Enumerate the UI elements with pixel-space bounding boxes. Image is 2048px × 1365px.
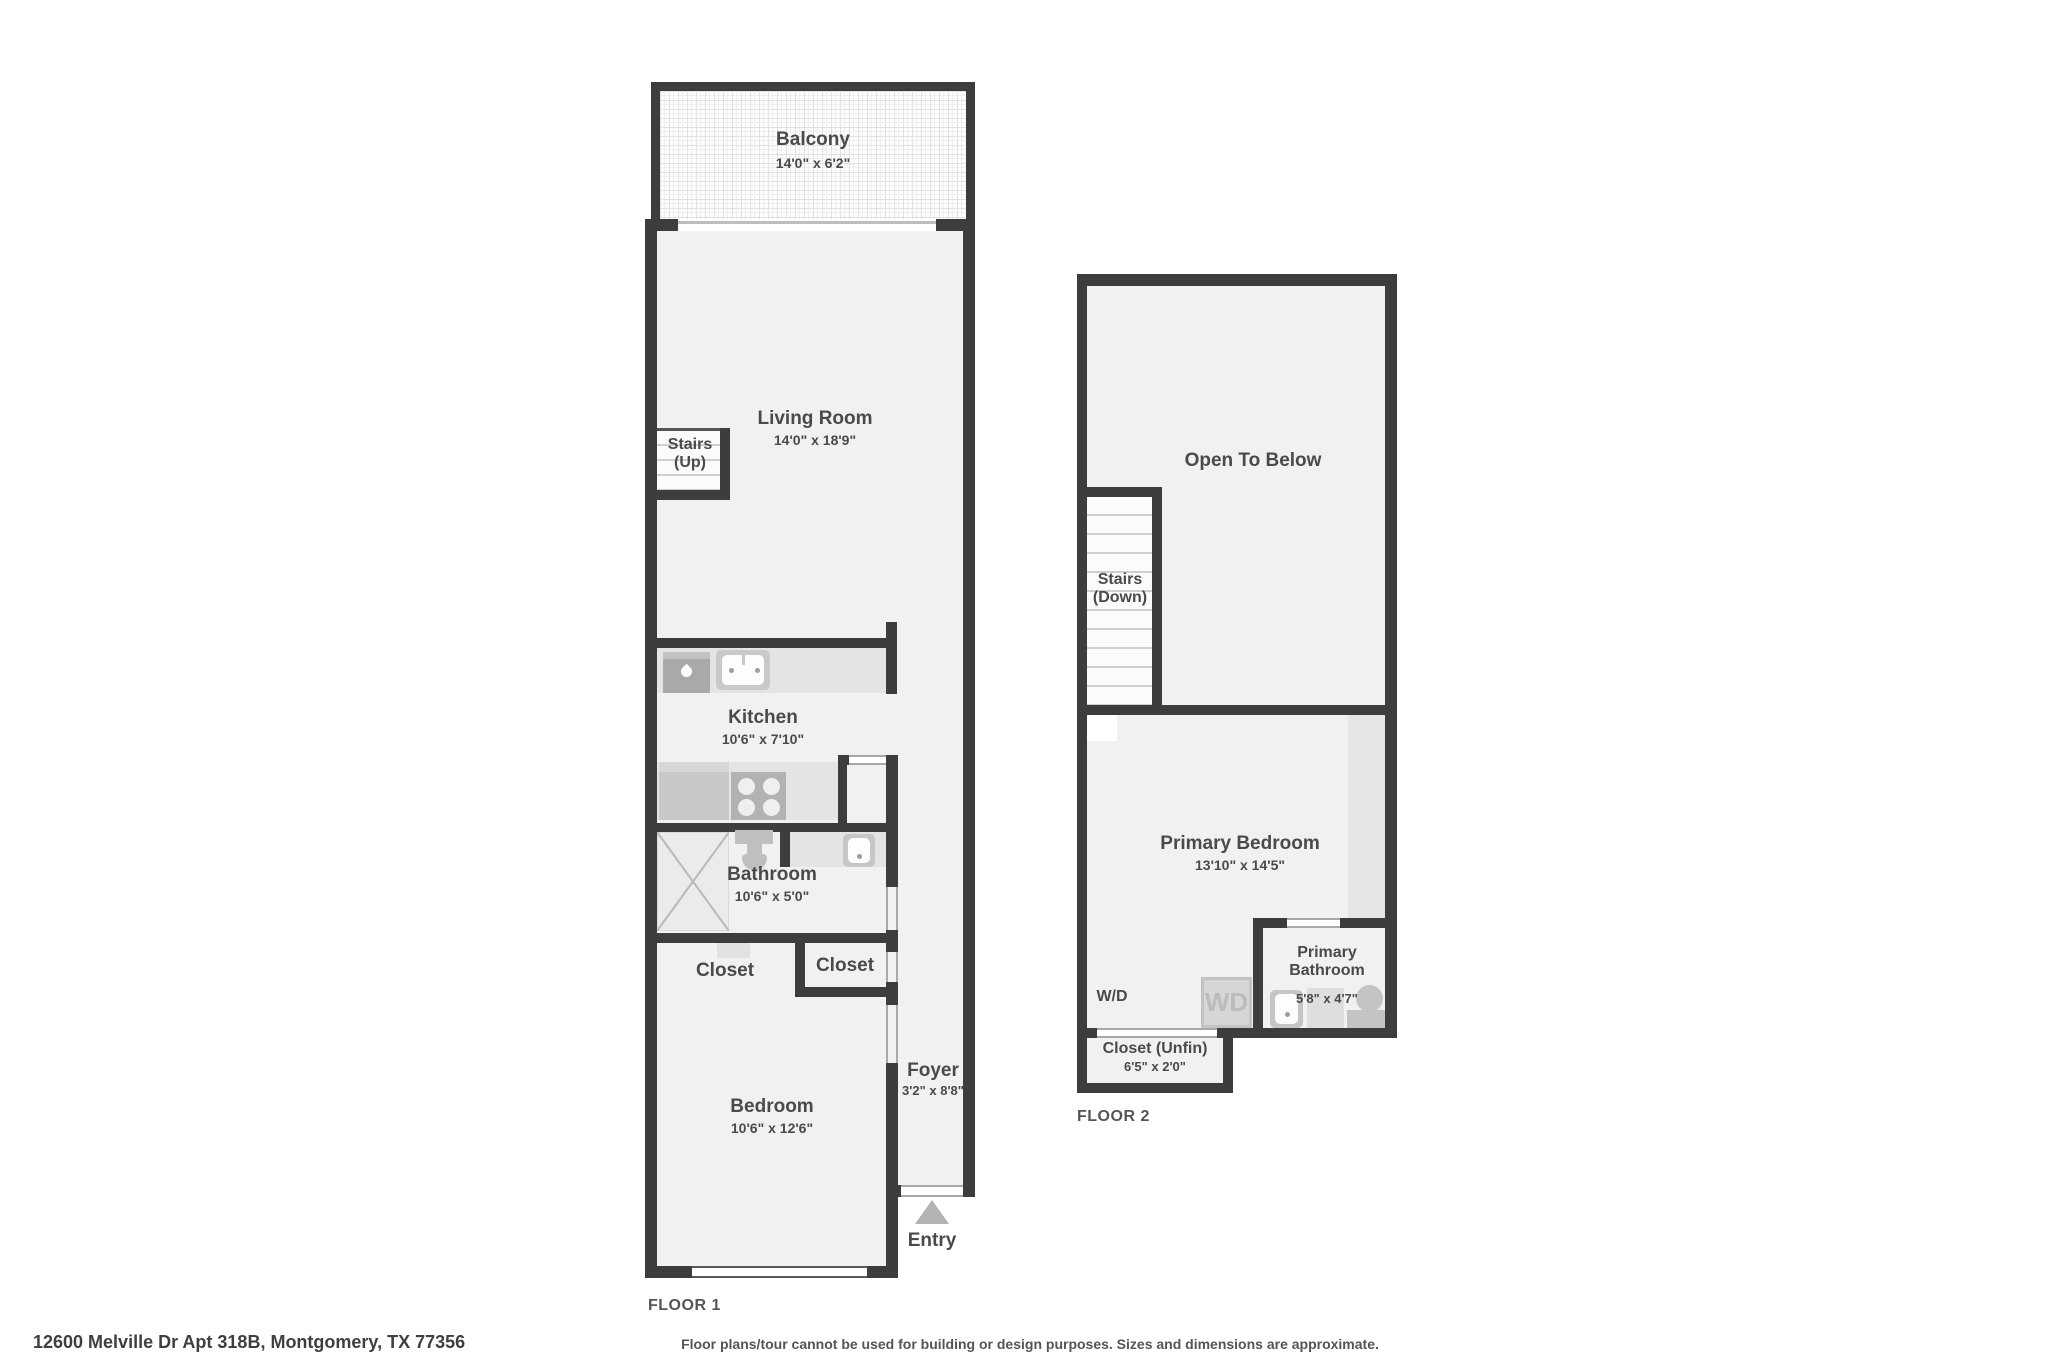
bedroom-window	[692, 1266, 867, 1278]
burner-icon	[763, 778, 780, 795]
wall-segment	[651, 82, 660, 228]
floor2-title: FLOOR 2	[1077, 1108, 1150, 1126]
stairs-up-topline	[657, 428, 720, 431]
wall-segment	[886, 1063, 898, 1278]
primary-bath-sink-basin	[1275, 994, 1298, 1024]
living-room-dims: 14'0" x 18'9"	[774, 432, 856, 448]
primary-bathroom-label: PrimaryBathroom	[1289, 944, 1365, 981]
wall-segment	[1340, 918, 1397, 928]
wall-segment	[966, 82, 975, 228]
shower-icon	[657, 832, 729, 931]
closet-door-opening	[849, 755, 886, 765]
floor1-title: FLOOR 1	[648, 1297, 721, 1315]
wall-segment	[1152, 487, 1162, 715]
wall-segment	[645, 933, 898, 943]
stairs-down-label: Stairs(Down)	[1093, 571, 1147, 608]
entry-label: Entry	[908, 1230, 957, 1252]
dishwasher-band	[663, 652, 710, 659]
wall-segment	[1253, 918, 1263, 1038]
door-jamb	[886, 887, 888, 930]
wd-unit-label: WD	[1205, 987, 1248, 1018]
wall-segment	[657, 490, 730, 500]
balcony-label: Balcony	[776, 129, 850, 151]
wall-segment	[1077, 487, 1162, 497]
wall-segment	[645, 219, 657, 1278]
toilet-icon	[735, 830, 773, 844]
wall-segment	[1077, 705, 1397, 715]
foyer-dims: 3'2" x 8'8"	[902, 1084, 964, 1099]
sink-dot	[1285, 1012, 1290, 1017]
primary-toilet-tank	[1347, 1010, 1385, 1028]
kitchen-label: Kitchen	[728, 707, 798, 729]
burner-icon	[738, 799, 755, 816]
closet-door-mark	[717, 943, 750, 958]
stairs-landing	[1087, 715, 1117, 741]
address-text: 12600 Melville Dr Apt 318B, Montgomery, …	[33, 1332, 465, 1353]
sink-dot	[729, 668, 734, 673]
washer-dryer-icon: WD	[1201, 977, 1252, 1028]
door-jamb	[896, 952, 898, 982]
floor1-fill-main	[645, 219, 975, 1197]
balcony-dims: 14'0" x 6'2"	[776, 155, 850, 171]
wall-segment	[1077, 1083, 1233, 1093]
door-jamb	[896, 887, 898, 930]
floor-plan-canvas: Balcony 14'0" x 6'2" Living Room 14'0" x…	[0, 0, 2048, 1365]
sink-dot	[755, 668, 760, 673]
disclaimer-text: Floor plans/tour cannot be used for buil…	[681, 1336, 1379, 1352]
wall-segment	[886, 755, 898, 887]
wall-segment	[1077, 274, 1087, 1038]
wall-segment	[838, 765, 847, 823]
bathroom-door-opening	[1287, 918, 1340, 928]
closet-right-label: Closet	[816, 955, 874, 977]
door-jamb	[896, 1005, 898, 1063]
wall-segment	[780, 832, 790, 867]
wall-segment	[1077, 274, 1397, 286]
bathroom-label: Bathroom	[727, 864, 817, 886]
bedroom-dims: 10'6" x 12'6"	[731, 1120, 813, 1136]
entry-door-opening	[901, 1185, 963, 1197]
primary-toilet-bowl	[1356, 985, 1383, 1012]
primary-bedroom-dims: 13'10" x 14'5"	[1195, 857, 1285, 873]
door-jamb	[886, 952, 888, 982]
wall-segment	[963, 219, 975, 1197]
sink-dot	[857, 854, 862, 859]
primary-bathroom-dims: 5'8" x 4'7"	[1296, 992, 1358, 1007]
burner-icon	[738, 778, 755, 795]
wall-segment	[645, 638, 897, 648]
entry-arrow-icon	[915, 1200, 949, 1224]
closet-unfin-label: Closet (Unfin)	[1103, 1040, 1208, 1058]
wall-segment	[886, 622, 897, 694]
sliding-door-line	[678, 221, 936, 224]
wall-segment	[1253, 918, 1287, 928]
open-to-below-label: Open To Below	[1185, 450, 1322, 472]
bathroom-sink-basin	[848, 838, 870, 863]
stairs-up-label: Stairs(Up)	[668, 436, 712, 473]
wall-segment	[838, 755, 849, 765]
bathroom-dims: 10'6" x 5'0"	[735, 888, 809, 904]
wall-segment	[651, 82, 975, 91]
burner-icon	[763, 799, 780, 816]
foyer-label: Foyer	[907, 1060, 959, 1082]
closet-unfin-dims: 6'5" x 2'0"	[1124, 1060, 1186, 1075]
closet-unfin-opening	[1097, 1028, 1217, 1038]
kitchen-dims: 10'6" x 7'10"	[722, 731, 804, 747]
primary-bedroom-label: Primary Bedroom	[1160, 833, 1319, 855]
kitchen-sink-divider	[742, 655, 745, 665]
living-room-label: Living Room	[757, 408, 872, 430]
door-jamb	[886, 1005, 888, 1063]
primary-bedroom-closet-strip	[1348, 715, 1385, 918]
fridge-band	[659, 762, 729, 772]
wd-label: W/D	[1096, 988, 1127, 1006]
bedroom-label: Bedroom	[730, 1096, 813, 1118]
wall-segment	[795, 987, 898, 997]
closet-left-label: Closet	[696, 960, 754, 982]
